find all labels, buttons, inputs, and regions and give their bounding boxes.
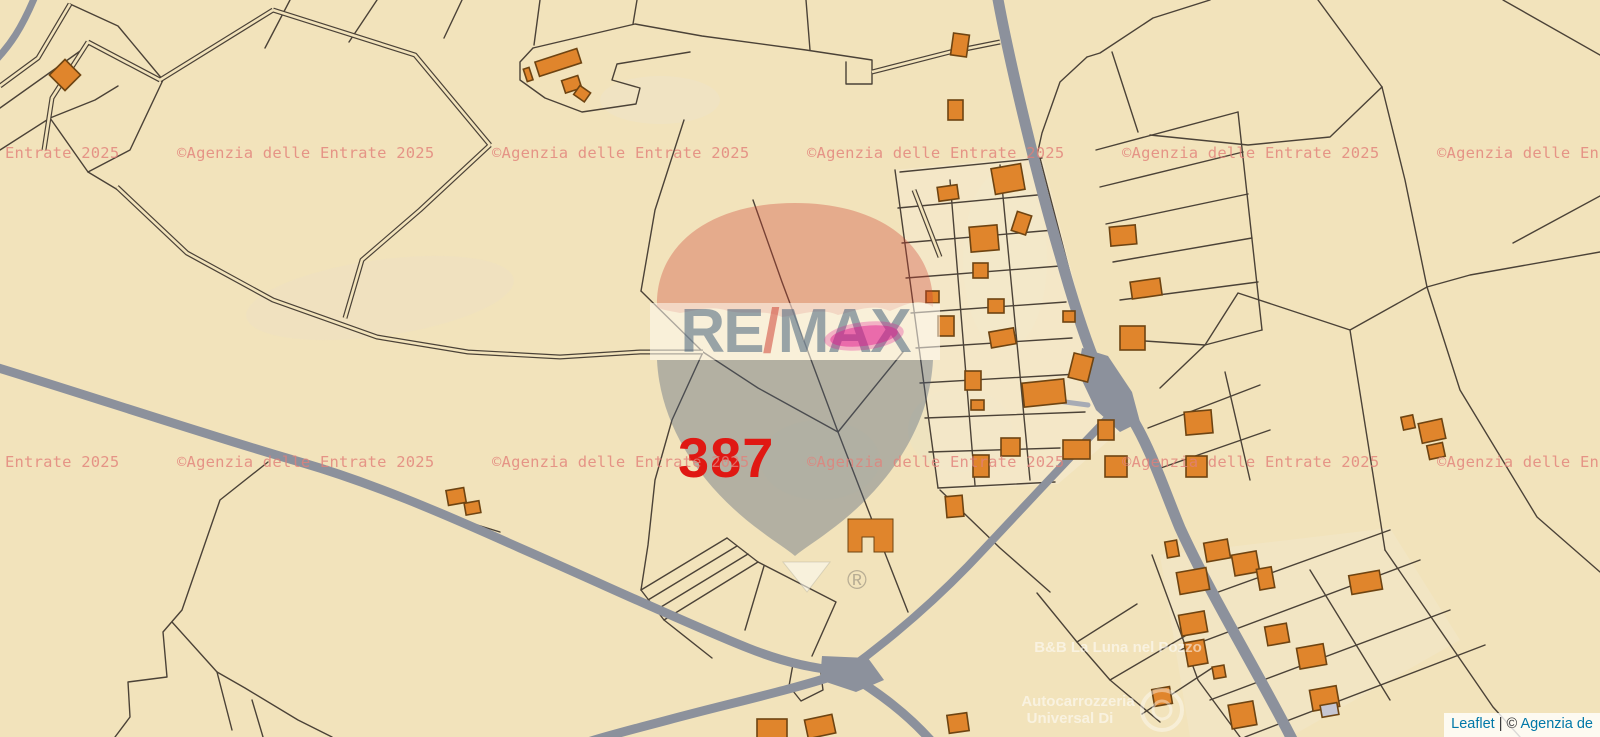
copyright-watermark: ©Agenzia delle Entrate 2025: [807, 144, 1064, 162]
attribution-provider-link[interactable]: Agenzia de: [1520, 716, 1593, 732]
copyright-watermark: ©Agenzia delle Entrate 2025: [1437, 144, 1600, 162]
poi-label-autocarrozzeria-line2: Universal Di: [1027, 710, 1114, 727]
copyright-watermark: ©Agenzia delle Entrate 2025: [492, 144, 749, 162]
registered-mark-icon: ®: [847, 565, 867, 595]
copyright-watermark: ©Agenzia delle Entrate 2025: [1437, 453, 1600, 471]
gray-building: [1320, 703, 1339, 718]
copyright-watermark: ©Agenzia delle Entrate 2025: [0, 144, 119, 162]
map-viewport[interactable]: RE/MAX ® 387 ©Agenzia delle Entrate 2025…: [0, 0, 1600, 737]
copyright-watermark: ©Agenzia delle Entrate 2025: [177, 453, 434, 471]
copyright-watermark: ©Agenzia delle Entrate 2025: [0, 453, 119, 471]
poi-label-autocarrozzeria-line1: Autocarrozzeria: [1021, 693, 1135, 710]
copyright-watermark: ©Agenzia delle Entrate 2025: [1122, 144, 1379, 162]
copyright-watermark: ©Agenzia delle Entrate 2025: [1122, 453, 1379, 471]
cadastral-map-canvas[interactable]: RE/MAX ® 387 ©Agenzia delle Entrate 2025…: [0, 0, 1600, 737]
attribution-bar: Leaflet | © Agenzia de: [1444, 713, 1600, 737]
copyright-watermark: ©Agenzia delle Entrate 2025: [807, 453, 1064, 471]
attribution-separator: | ©: [1495, 716, 1521, 732]
copyright-watermark: ©Agenzia delle Entrate 2025: [177, 144, 434, 162]
poi-label-bnb: B&B La Luna nel Pozzo: [1034, 639, 1202, 656]
copyright-watermark: ©Agenzia delle Entrate 2025: [492, 453, 749, 471]
attribution-leaflet-link[interactable]: Leaflet: [1451, 716, 1495, 732]
